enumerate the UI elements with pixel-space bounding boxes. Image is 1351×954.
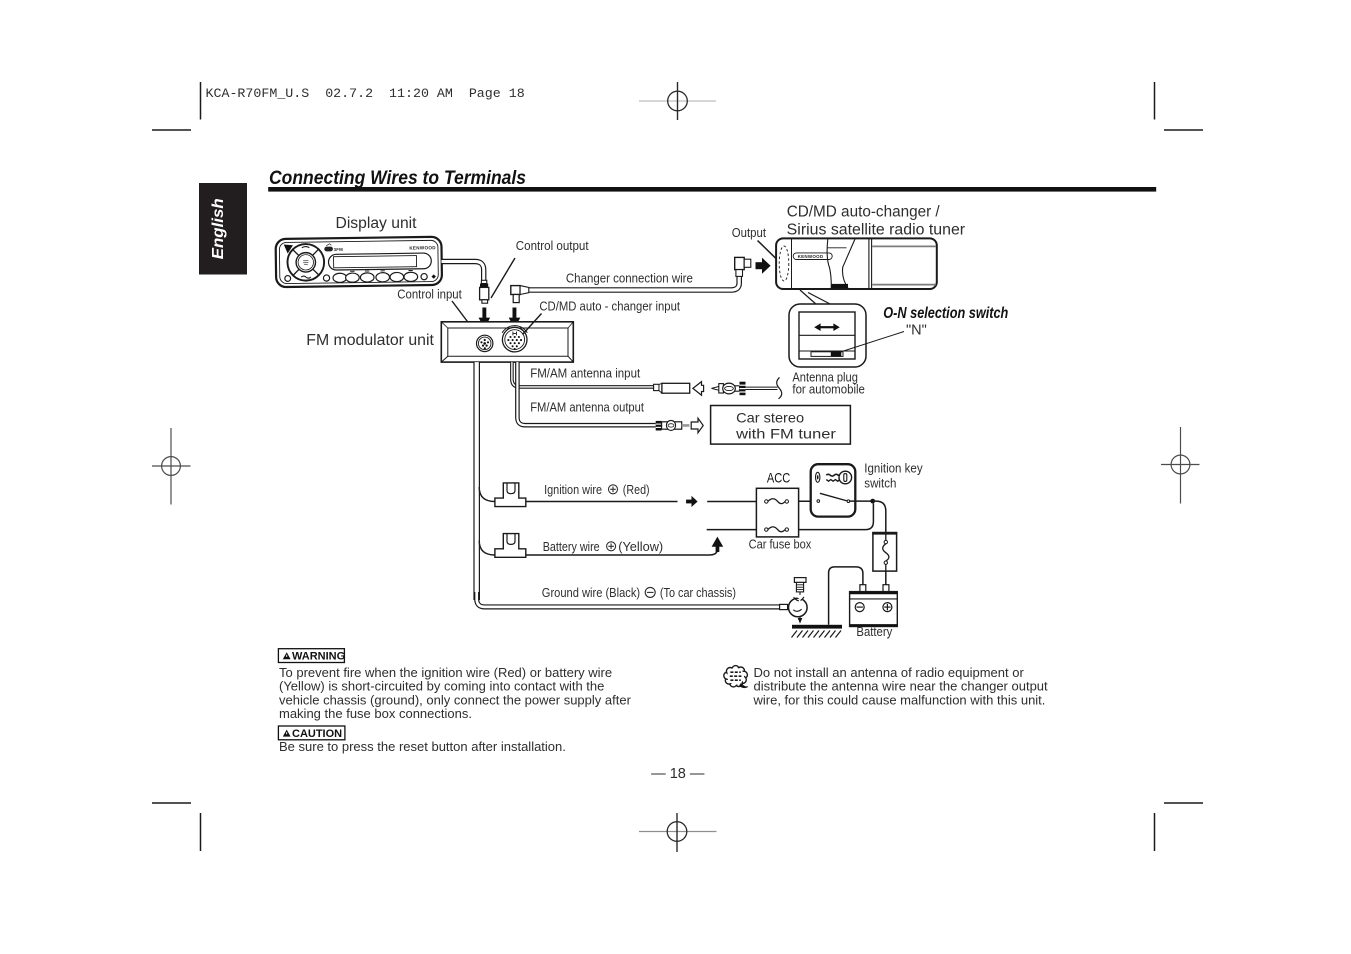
svg-text:making the fuse box connection: making the fuse box connections. [279, 706, 472, 721]
svg-text:for automobile: for automobile [792, 383, 865, 397]
svg-text:Car stereo: Car stereo [736, 410, 804, 426]
svg-text:Sirius satellite radio tuner: Sirius satellite radio tuner [787, 222, 965, 239]
svg-text:Battery: Battery [856, 624, 892, 639]
svg-text:KENWOOD: KENWOOD [409, 245, 436, 250]
svg-text:FM/AM antenna input: FM/AM antenna input [530, 366, 640, 381]
svg-text:Connecting Wires to Terminals: Connecting Wires to Terminals [269, 168, 526, 189]
svg-text:KCA-R70FM_U.S 02.7.2 11:20 A: KCA-R70FM_U.S 02.7.2 11:20 AM Page 18 [206, 86, 525, 101]
svg-text:(Yellow): (Yellow) [618, 539, 663, 554]
svg-text:— 18 —: — 18 — [651, 766, 705, 782]
svg-text:Output: Output [732, 226, 767, 240]
svg-text:Battery wire: Battery wire [543, 539, 600, 554]
svg-text:Be sure to press the reset but: Be sure to press the reset button after … [279, 739, 566, 754]
svg-text:"N": "N" [906, 323, 927, 339]
svg-text:CD/MD auto-changer /: CD/MD auto-changer / [787, 204, 941, 221]
svg-text:Ignition key: Ignition key [864, 461, 923, 476]
svg-text:English: English [210, 198, 227, 259]
svg-text:WARNING: WARNING [292, 651, 345, 663]
svg-text:CD/MD auto - changer input: CD/MD auto - changer input [539, 299, 680, 314]
svg-text:Car fuse box: Car fuse box [749, 537, 812, 552]
svg-text:(To car chassis): (To car chassis) [660, 585, 736, 600]
svg-text:Control output: Control output [516, 238, 589, 253]
svg-text:Display unit: Display unit [336, 215, 418, 232]
svg-text:O-N selection switch: O-N selection switch [883, 305, 1008, 322]
svg-text:Ground wire (Black): Ground wire (Black) [542, 585, 640, 600]
svg-text:KENWOOD: KENWOOD [798, 254, 824, 259]
svg-text:Changer connection wire: Changer connection wire [566, 271, 693, 286]
svg-text:switch: switch [864, 476, 896, 491]
svg-text:FM/AM antenna output: FM/AM antenna output [530, 400, 644, 415]
svg-text:with FM tuner: with FM tuner [735, 426, 836, 442]
svg-text:Control input: Control input [397, 287, 462, 302]
svg-text:ACC: ACC [767, 470, 790, 486]
svg-text:wire, for this could cause mal: wire, for this could cause malfunction w… [753, 692, 1046, 707]
svg-text:(Red): (Red) [623, 482, 650, 497]
svg-text:FM modulator unit: FM modulator unit [306, 332, 434, 349]
svg-text:3FM: 3FM [334, 247, 344, 252]
svg-text:Ignition wire: Ignition wire [544, 482, 602, 497]
